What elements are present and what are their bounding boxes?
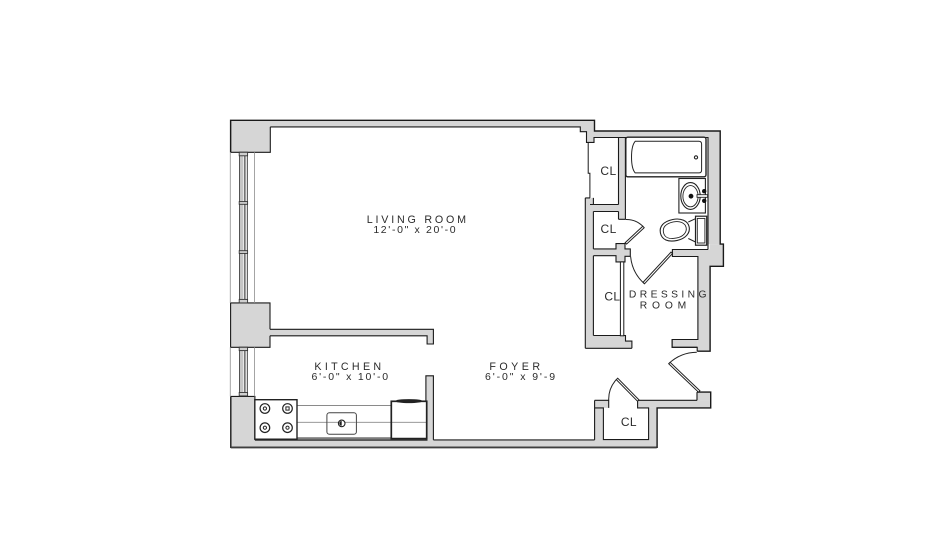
svg-text:DRESSING: DRESSING xyxy=(629,290,710,301)
svg-text:12'-0" x 20'-0: 12'-0" x 20'-0 xyxy=(373,224,457,236)
svg-text:6'-0" x 9'-9: 6'-0" x 9'-9 xyxy=(485,371,557,383)
svg-text:CL: CL xyxy=(621,415,637,429)
svg-text:CL: CL xyxy=(601,222,617,236)
svg-text:CL: CL xyxy=(600,164,616,178)
svg-text:6'-0" x 10'-0: 6'-0" x 10'-0 xyxy=(311,371,389,383)
svg-text:CL: CL xyxy=(604,289,620,303)
svg-text:ROOM: ROOM xyxy=(640,301,691,312)
